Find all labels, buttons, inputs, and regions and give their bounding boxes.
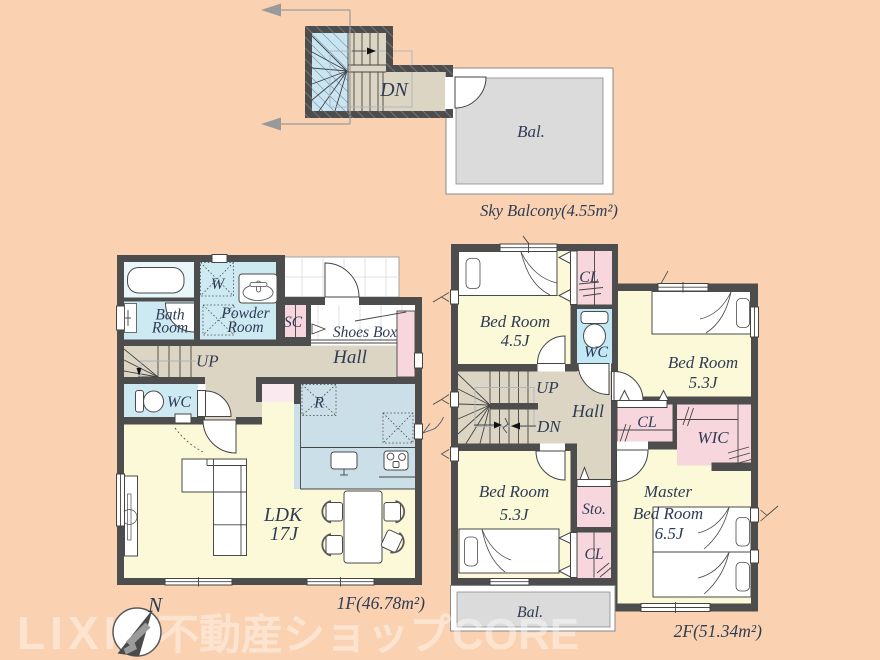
svg-text:Room: Room	[226, 319, 263, 336]
svg-text:Shoes Box: Shoes Box	[333, 324, 397, 341]
svg-text:DN: DN	[536, 417, 562, 436]
svg-text:N: N	[147, 593, 163, 617]
svg-text:5.3J: 5.3J	[689, 373, 719, 392]
svg-text:UP: UP	[536, 378, 559, 397]
svg-text:Master: Master	[643, 482, 693, 501]
svg-text:5.3J: 5.3J	[500, 505, 530, 524]
svg-text:4.5J: 4.5J	[501, 331, 531, 350]
svg-text:Sky Balcony(4.55m²): Sky Balcony(4.55m²)	[480, 201, 618, 220]
svg-text:CL: CL	[579, 269, 599, 286]
svg-text:CL: CL	[637, 414, 657, 431]
svg-text:CORE: CORE	[452, 610, 579, 659]
svg-text:UP: UP	[196, 352, 219, 371]
svg-text:Bed Room: Bed Room	[479, 482, 549, 501]
svg-text:Bed Room: Bed Room	[633, 504, 703, 523]
svg-text:WIC: WIC	[697, 428, 729, 447]
svg-text:Bed Room: Bed Room	[480, 312, 550, 331]
svg-text:2F(51.34m²): 2F(51.34m²)	[674, 621, 763, 641]
svg-text:DN: DN	[379, 79, 409, 101]
svg-text:Bed Room: Bed Room	[668, 353, 738, 372]
svg-text:Hall: Hall	[571, 401, 604, 421]
svg-text:CL: CL	[585, 546, 604, 563]
svg-text:Bal.: Bal.	[517, 122, 545, 141]
svg-text:LDK: LDK	[263, 505, 303, 526]
svg-text:R: R	[313, 395, 324, 412]
svg-text:Hall: Hall	[332, 347, 367, 368]
svg-text:W: W	[211, 276, 226, 293]
svg-text:不動産ショップ: 不動産ショップ	[157, 611, 451, 658]
svg-text:Sto.: Sto.	[582, 501, 606, 518]
svg-text:WC: WC	[584, 344, 608, 361]
svg-text:1F(46.78m²): 1F(46.78m²)	[337, 593, 426, 613]
svg-text:SC: SC	[284, 314, 303, 331]
svg-text:WC: WC	[167, 394, 191, 411]
svg-text:Room: Room	[151, 320, 188, 337]
svg-text:6.5J: 6.5J	[655, 524, 685, 543]
svg-text:17J: 17J	[270, 524, 300, 545]
